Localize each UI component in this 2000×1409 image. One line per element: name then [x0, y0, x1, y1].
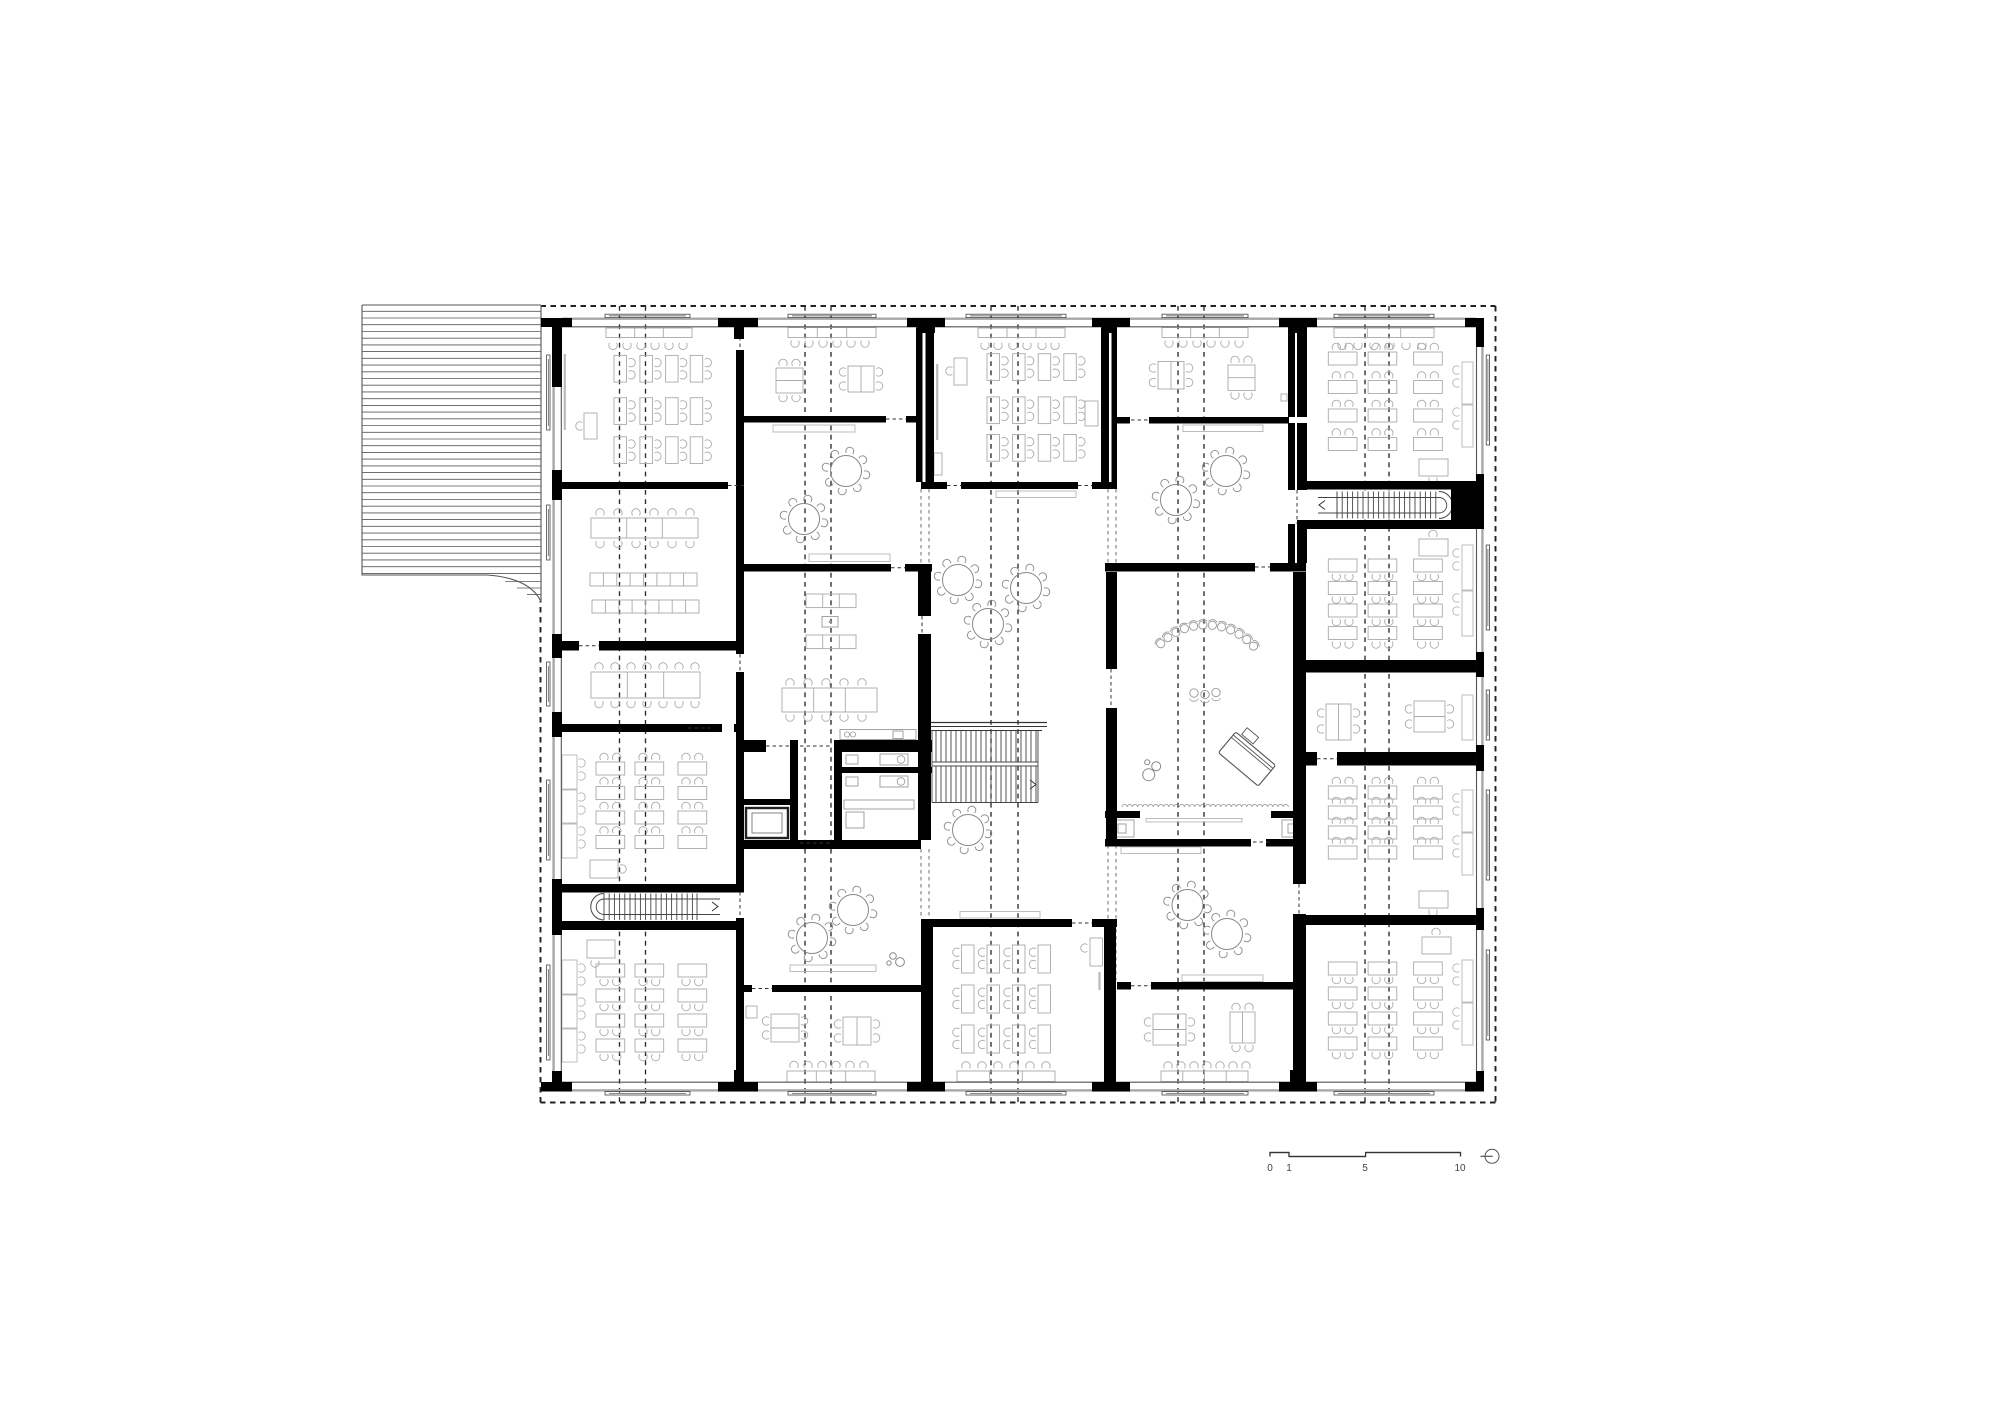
svg-text:5: 5 [1362, 1163, 1368, 1174]
svg-text:1: 1 [1286, 1163, 1292, 1174]
svg-text:0: 0 [1267, 1163, 1273, 1174]
svg-text:10: 10 [1454, 1163, 1466, 1174]
